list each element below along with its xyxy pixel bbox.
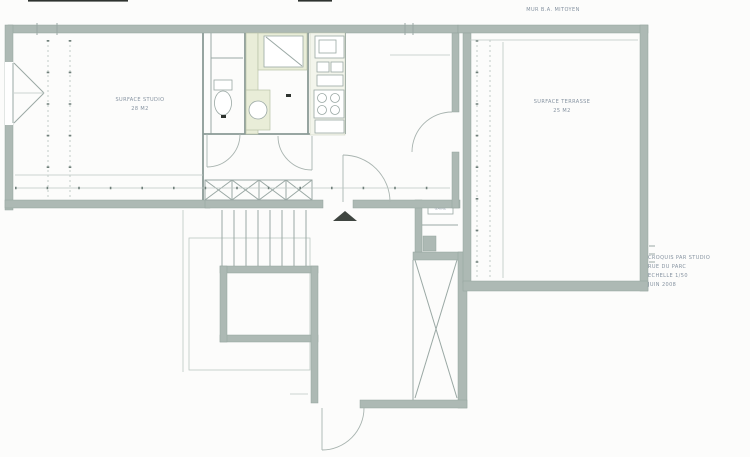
scan-artifact [298, 0, 332, 2]
hall-bottom-wall [360, 400, 467, 408]
railing-strip [205, 180, 312, 200]
apartment-entrance-door [343, 155, 390, 202]
title-block-line: JUIN 2008 [647, 282, 676, 288]
svg-text:25 M2: 25 M2 [553, 108, 570, 114]
fixture-mark [286, 94, 291, 97]
svg-text:28 M2: 28 M2 [131, 106, 148, 112]
scan-artifact [28, 0, 128, 2]
title-block-line: CROQUIS PAR STUDIO [648, 255, 710, 261]
kitchen-fixtures [310, 33, 345, 135]
stove [314, 90, 344, 118]
bathroom-fixtures [246, 33, 307, 134]
wc-door [207, 134, 240, 167]
svg-text:SURFACE TERRASSE: SURFACE TERRASSE [534, 99, 591, 105]
duct-block [423, 236, 436, 251]
terrace-door [412, 112, 452, 152]
wc-toilet [214, 80, 232, 118]
floor-plan-drawing: GAINE [0, 0, 750, 457]
stairwell-walls [220, 266, 318, 403]
bathroom-door [278, 136, 312, 170]
left-window [5, 62, 44, 125]
stair-direction-arrow-icon [333, 211, 357, 221]
title-block-line: ECHELLE 1/50 [648, 273, 688, 279]
floor-plan-page: GAINE [0, 0, 750, 457]
fixture-mark [221, 115, 226, 118]
title-block: CROQUIS PAR STUDIO RUE DU PARC ECHELLE 1… [647, 255, 710, 288]
kitchen-counter [315, 120, 344, 133]
elevator-shaft [413, 252, 467, 408]
party-wall-label: MUR B.A. MITOYEN [526, 7, 579, 13]
washbasin [249, 101, 267, 119]
terrace-room-label: SURFACE TERRASSE 25 M2 [534, 99, 591, 114]
studio-room-label: SURFACE STUDIO 28 M2 [115, 97, 164, 112]
building-entrance-door [322, 408, 364, 450]
svg-text:SURFACE STUDIO: SURFACE STUDIO [115, 97, 164, 103]
title-block-line: RUE DU PARC [648, 264, 686, 270]
